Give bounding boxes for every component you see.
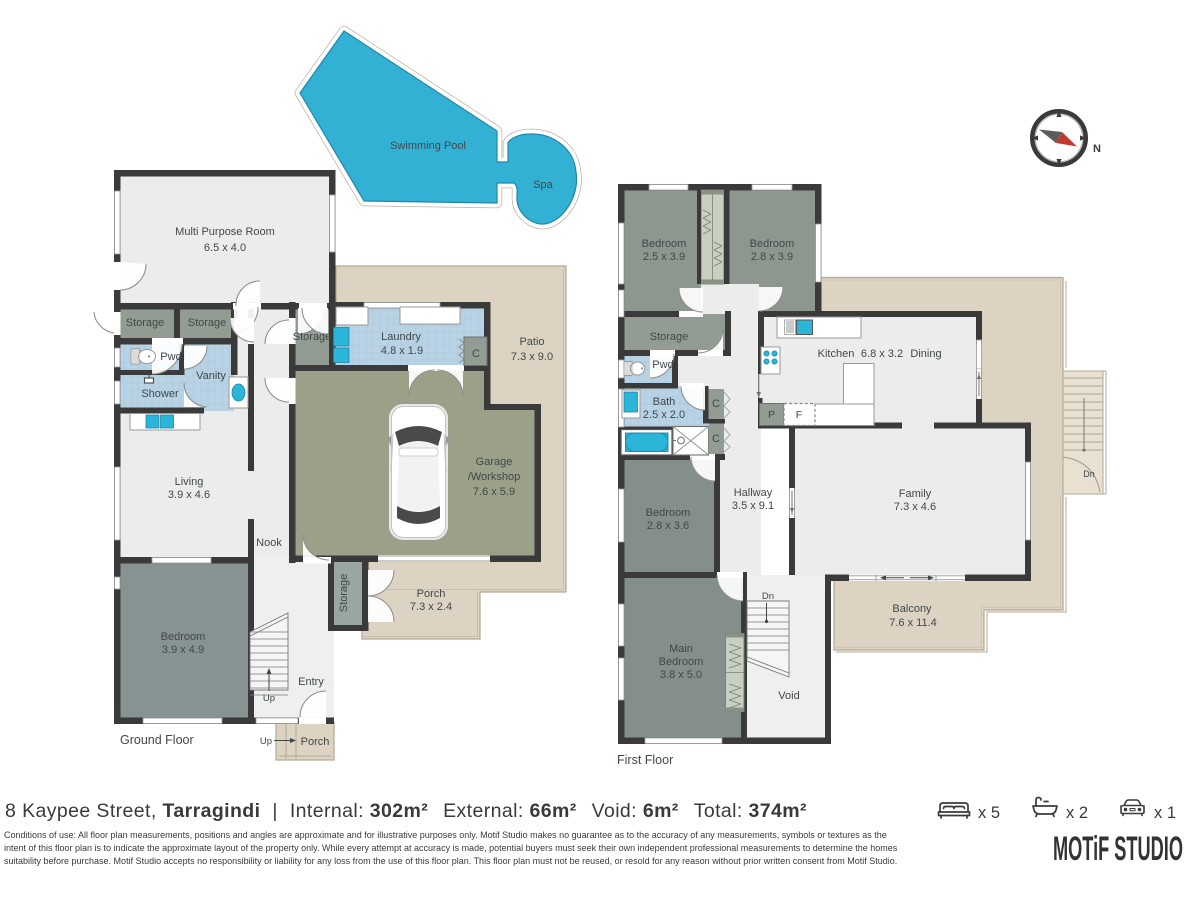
svg-text:Conditions of use: All floor p: Conditions of use: All floor plan measur… <box>4 830 887 840</box>
svg-text:x 5: x 5 <box>978 804 1000 822</box>
svg-text:3.9 x 4.9: 3.9 x 4.9 <box>162 644 204 656</box>
svg-text:Balcony: Balcony <box>892 603 932 615</box>
svg-text:C: C <box>472 348 480 360</box>
svg-text:/Workshop: /Workshop <box>468 471 520 483</box>
svg-text:Hallway: Hallway <box>734 487 773 499</box>
svg-text:Shower: Shower <box>141 388 179 400</box>
svg-text:Dn: Dn <box>762 591 774 602</box>
svg-text:Vanity: Vanity <box>196 370 226 382</box>
svg-text:7.6 x 11.4: 7.6 x 11.4 <box>889 617 937 629</box>
svg-text:Void: Void <box>778 690 799 702</box>
svg-text:Laundry: Laundry <box>381 331 421 343</box>
svg-text:Dining: Dining <box>910 348 941 360</box>
svg-text:Storage: Storage <box>126 317 165 329</box>
svg-text:x 2: x 2 <box>1066 804 1088 822</box>
svg-text:Porch: Porch <box>301 736 330 748</box>
svg-text:Pwd: Pwd <box>652 359 673 371</box>
svg-text:3.8 x 5.0: 3.8 x 5.0 <box>660 669 702 681</box>
svg-text:Spa: Spa <box>533 179 553 191</box>
svg-text:Multi Purpose Room: Multi Purpose Room <box>175 226 275 238</box>
svg-text:Storage: Storage <box>188 317 227 329</box>
svg-text:2.5 x 2.0: 2.5 x 2.0 <box>643 409 685 421</box>
svg-text:suitability before purchase. M: suitability before purchase. Motif Studi… <box>4 856 897 866</box>
svg-text:Bedroom: Bedroom <box>659 656 704 668</box>
svg-text:N: N <box>1093 143 1101 155</box>
svg-text:First Floor: First Floor <box>617 753 673 767</box>
svg-text:7.3 x 2.4: 7.3 x 2.4 <box>410 601 452 613</box>
svg-text:Entry: Entry <box>298 676 324 688</box>
svg-text:Pwd: Pwd <box>160 351 181 363</box>
svg-text:Family: Family <box>899 488 932 500</box>
svg-text:x 1: x 1 <box>1154 804 1176 822</box>
svg-text:3.5 x 9.1: 3.5 x 9.1 <box>732 500 774 512</box>
svg-text:Storage: Storage <box>338 574 350 613</box>
svg-text:Main: Main <box>669 643 693 655</box>
svg-text:4.8 x 1.9: 4.8 x 1.9 <box>381 345 423 357</box>
svg-text:Storage: Storage <box>293 331 332 343</box>
svg-text:3.9 x 4.6: 3.9 x 4.6 <box>168 489 210 501</box>
svg-text:Kitchen: Kitchen <box>818 348 855 360</box>
svg-text:intent of this floor plan is t: intent of this floor plan is to indicate… <box>4 843 898 853</box>
svg-text:Bedroom: Bedroom <box>646 507 691 519</box>
svg-text:7.3 x 4.6: 7.3 x 4.6 <box>894 501 936 513</box>
svg-text:2.8 x 3.9: 2.8 x 3.9 <box>751 251 793 263</box>
svg-text:Dn: Dn <box>1083 469 1095 479</box>
svg-text:Nook: Nook <box>256 537 282 549</box>
svg-text:Bedroom: Bedroom <box>750 238 795 250</box>
svg-text:2.5 x 3.9: 2.5 x 3.9 <box>643 251 685 263</box>
svg-text:Swimming Pool: Swimming Pool <box>390 140 466 152</box>
svg-text:Garage: Garage <box>476 456 513 468</box>
svg-text:C: C <box>712 398 720 410</box>
svg-text:C: C <box>712 433 720 445</box>
svg-text:Bedroom: Bedroom <box>642 238 687 250</box>
svg-text:Patio: Patio <box>519 336 544 348</box>
svg-text:2.8 x 3.6: 2.8 x 3.6 <box>647 520 689 532</box>
svg-text:7.6 x 5.9: 7.6 x 5.9 <box>473 486 515 498</box>
svg-text:Porch: Porch <box>417 588 446 600</box>
svg-text:F: F <box>796 409 802 421</box>
svg-text:P: P <box>768 409 775 421</box>
svg-text:Living: Living <box>175 476 204 488</box>
svg-text:Ground Floor: Ground Floor <box>120 733 194 747</box>
svg-text:7.3 x 9.0: 7.3 x 9.0 <box>511 351 553 363</box>
svg-text:Up: Up <box>260 736 272 747</box>
svg-text:Bath: Bath <box>653 396 676 408</box>
svg-text:6.8 x 3.2: 6.8 x 3.2 <box>861 348 903 360</box>
svg-text:6.5 x 4.0: 6.5 x 4.0 <box>204 242 246 254</box>
svg-text:Storage: Storage <box>650 331 689 343</box>
svg-text:MOTiF STUDIO: MOTiF STUDIO <box>1053 830 1183 868</box>
svg-text:Up: Up <box>263 693 275 704</box>
svg-text:Bedroom: Bedroom <box>161 631 206 643</box>
